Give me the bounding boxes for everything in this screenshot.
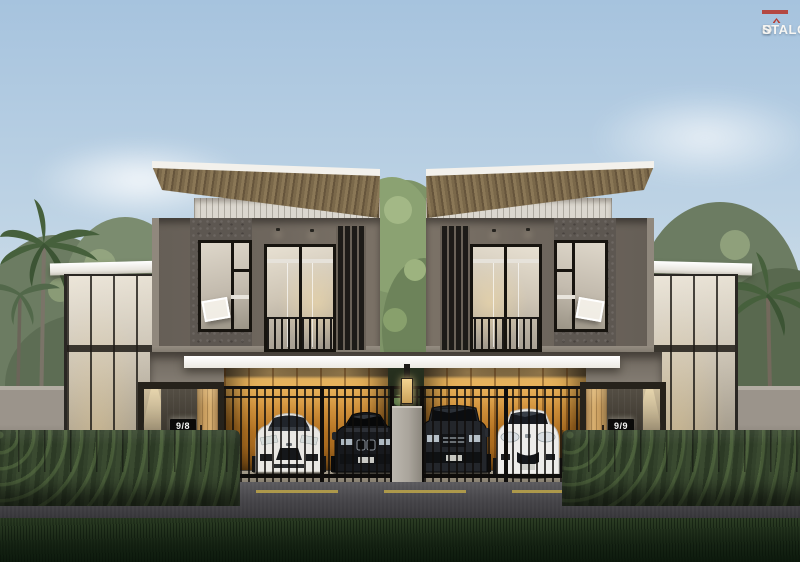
concrete-pillar: [392, 406, 422, 482]
juliet-railing: [267, 317, 333, 349]
fence-post: [504, 386, 508, 482]
window-sill: [231, 295, 249, 299]
open-window-sash: [575, 297, 604, 322]
house-left-upper: [140, 156, 392, 356]
eave-downlight: [526, 228, 530, 231]
balcony-window: [264, 244, 336, 352]
scene-architectural-render: 9/8 9/9 NOSTALGIA: [0, 0, 800, 562]
juliet-railing: [473, 317, 539, 349]
hedge-left: [0, 430, 240, 506]
balcony-window: [470, 244, 542, 352]
window-mullion: [231, 243, 234, 329]
hedge-right: [562, 430, 800, 506]
vertical-louvers: [440, 226, 470, 350]
eave-downlight: [310, 229, 314, 232]
side-trim: [152, 218, 159, 354]
house-right-upper: [414, 156, 666, 356]
open-window-sash: [201, 297, 230, 322]
window-sill: [557, 295, 575, 299]
eave-downlight: [276, 228, 280, 231]
eave-downlight: [492, 229, 496, 232]
bedroom-window: [554, 240, 608, 332]
fence-post: [320, 386, 324, 482]
window-mullion: [231, 269, 249, 272]
carport-canopy: [184, 356, 620, 368]
logo-letters: STALGIA: [762, 22, 800, 37]
logo-subtext-mark: [762, 10, 788, 14]
pillar-lamp-light: [401, 378, 413, 404]
nostalgia-logo: NOSTALGIA: [762, 9, 788, 27]
window-mullion: [557, 269, 575, 272]
side-trim: [647, 218, 654, 354]
vertical-louvers: [336, 226, 366, 350]
bedroom-window: [198, 240, 252, 332]
foreground-grass: [0, 518, 800, 562]
